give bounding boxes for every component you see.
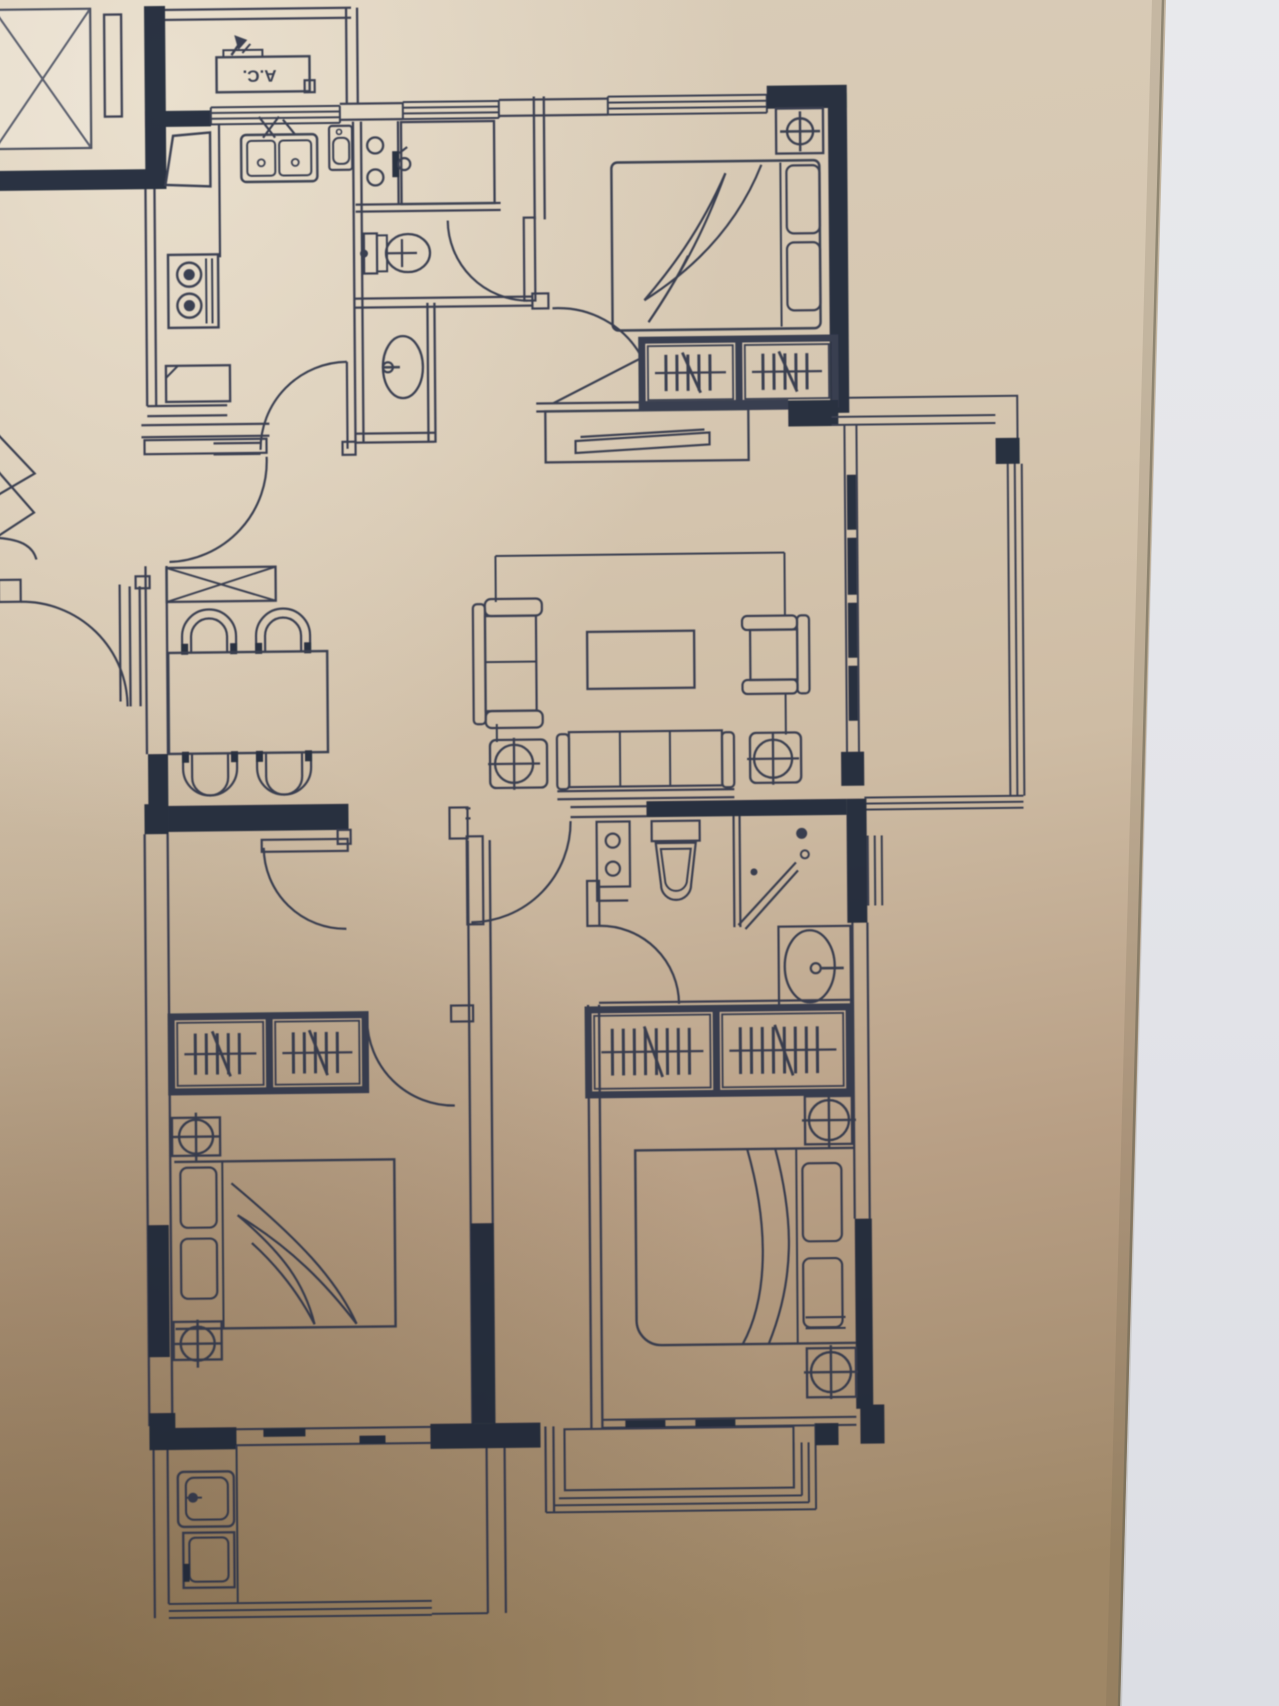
svg-text:A.C.: A.C. [242, 66, 276, 85]
